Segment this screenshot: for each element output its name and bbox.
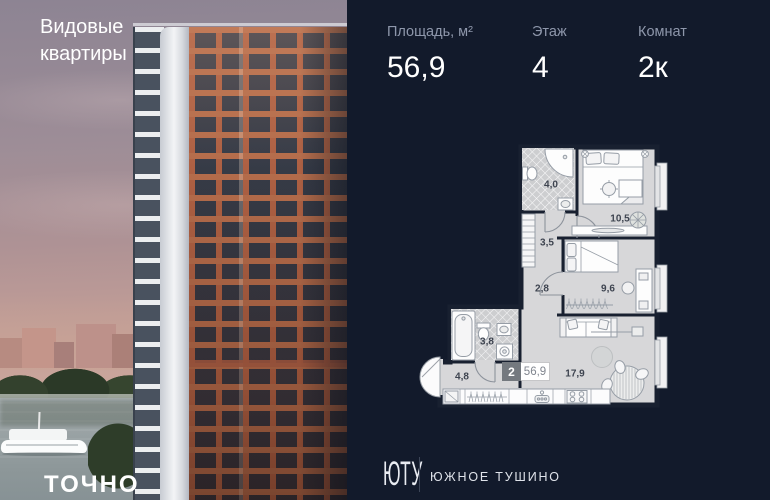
apartment-listing-card[interactable]: Видовые квартиры ТОЧНО Площадь, м² 56,9 … [0,0,770,500]
building-photo: Видовые квартиры ТОЧНО [0,0,347,500]
room-area-label: 4,8 [455,372,469,383]
stat-floor-label: Этаж [532,24,567,40]
stat-rooms-label: Комнат [638,24,687,40]
badge-room-count: 2 [502,362,521,381]
photo-headline: Видовые квартиры [40,14,160,68]
project-logo: ЮТУ [383,454,423,494]
stat-area-value: 56,9 [387,51,473,85]
tower-white-corner [160,27,191,500]
entrance-door [420,357,440,397]
stat-rooms: Комнат 2к [638,24,687,85]
stat-rooms-value: 2к [638,51,687,85]
tower-roofline [133,23,347,26]
stat-floor: Этаж 4 [532,24,567,85]
logo-divider [419,457,420,492]
plan-total-badge: 2 56,9 [502,362,550,381]
room-area-label: 17,9 [565,369,584,380]
stat-floor-value: 4 [532,51,567,85]
badge-total-area: 56,9 [521,362,550,381]
room-area-label: 10,5 [610,214,629,225]
ship-shadow [2,452,86,456]
stat-area: Площадь, м² 56,9 [387,24,473,85]
district-name: ЮЖНОЕ ТУШИНО [430,470,561,484]
room-area-label: 2,8 [535,284,549,295]
room-area-label: 3,8 [480,337,494,348]
developer-logo: ТОЧНО [44,471,140,499]
ship-hull-line [6,444,78,446]
room-area-label: 9,6 [601,284,615,295]
tower-shadow [300,27,347,500]
plan-balconies [655,163,667,388]
stat-area-label: Площадь, м² [387,24,473,40]
room-area-label: 4,0 [544,180,558,191]
room-area-label: 3,5 [540,238,554,249]
